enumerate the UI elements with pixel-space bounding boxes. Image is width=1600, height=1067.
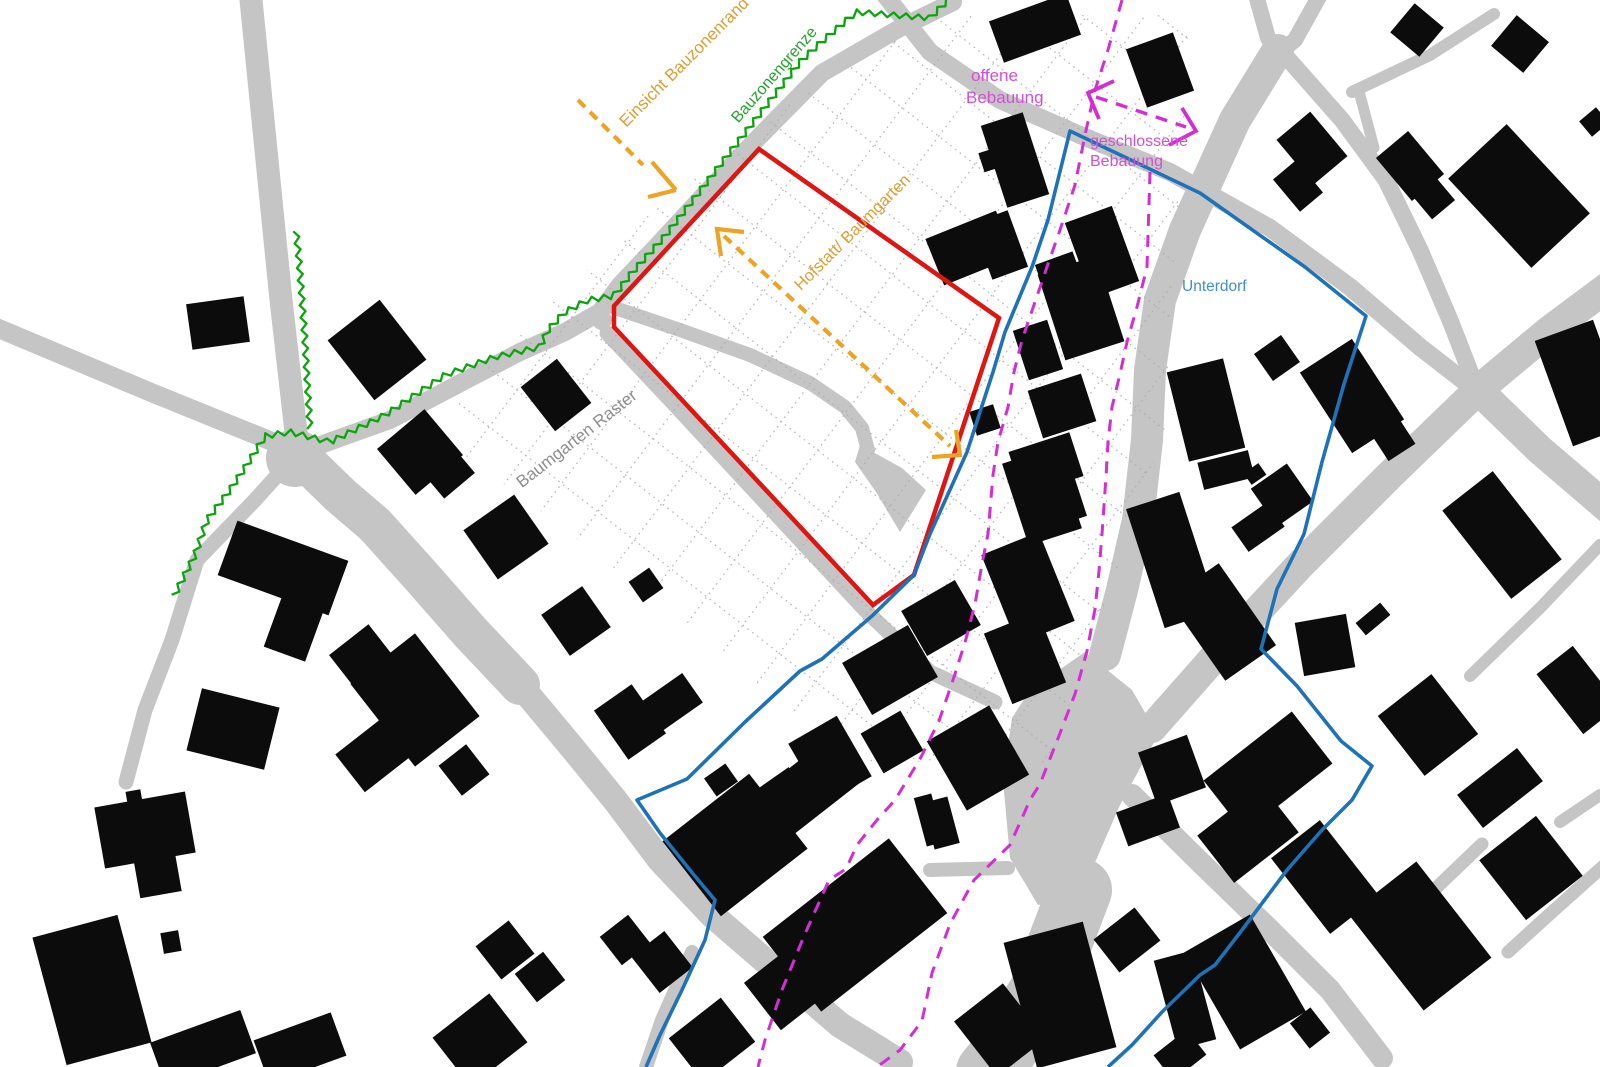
svg-text:offene: offene <box>971 66 1018 85</box>
svg-text:Unterdorf: Unterdorf <box>1182 278 1247 295</box>
svg-text:Bebauung: Bebauung <box>966 88 1044 107</box>
svg-text:Bebauung: Bebauung <box>1090 153 1163 170</box>
svg-text:geschlossene: geschlossene <box>1090 133 1188 150</box>
